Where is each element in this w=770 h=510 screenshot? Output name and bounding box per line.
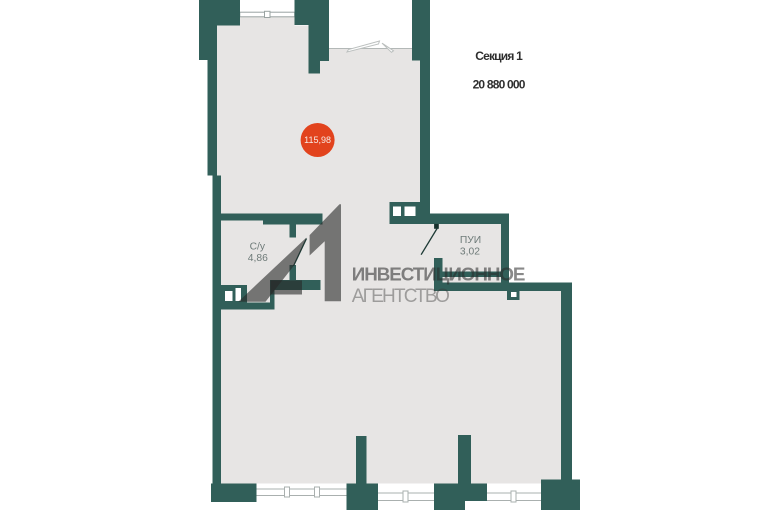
svg-text:ПУИ: ПУИ — [460, 235, 481, 246]
svg-text:4,86: 4,86 — [248, 253, 268, 264]
svg-text:Секция 1: Секция 1 — [475, 49, 523, 63]
svg-text:ИНВЕСТИЦИОННОЕ: ИНВЕСТИЦИОННОЕ — [352, 263, 525, 284]
svg-text:20 880 000: 20 880 000 — [473, 77, 526, 91]
svg-text:АГЕНТСТВО: АГЕНТСТВО — [352, 286, 449, 307]
svg-text:115,98: 115,98 — [304, 135, 331, 145]
svg-text:С/у: С/у — [250, 241, 266, 252]
svg-text:3,02: 3,02 — [460, 247, 480, 258]
